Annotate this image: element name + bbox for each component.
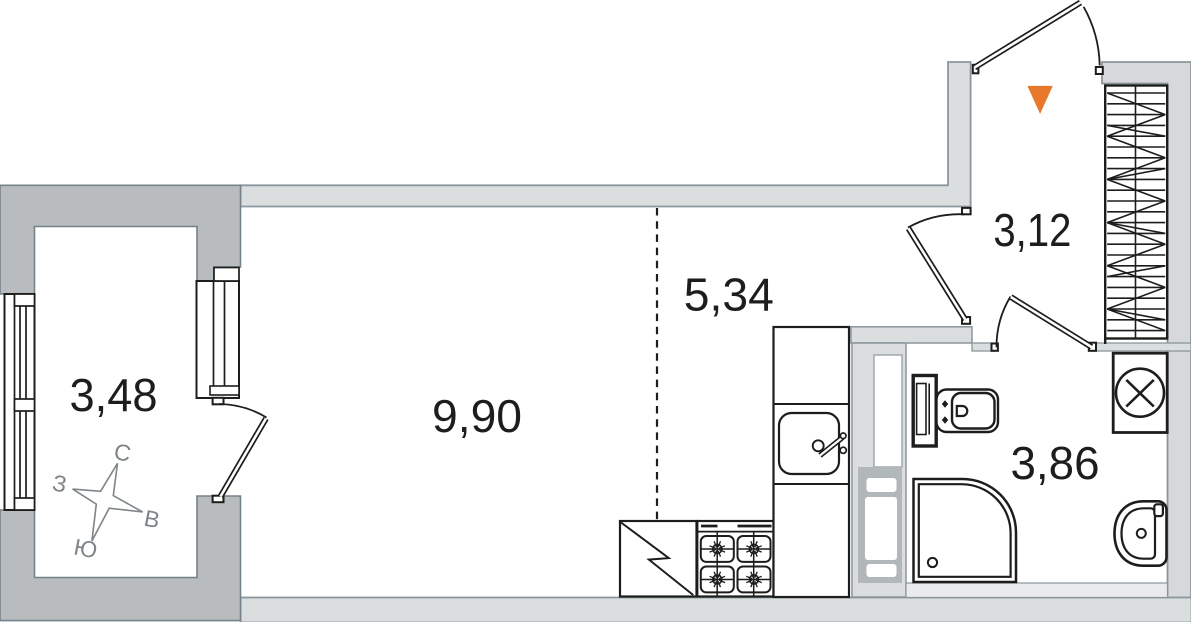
- svg-text:3,48: 3,48: [70, 369, 158, 421]
- svg-text:9,90: 9,90: [432, 390, 522, 442]
- svg-text:5,34: 5,34: [684, 269, 774, 321]
- svg-text:3,12: 3,12: [993, 204, 1071, 256]
- svg-text:Ю: Ю: [72, 534, 100, 564]
- svg-text:3,86: 3,86: [1011, 437, 1100, 489]
